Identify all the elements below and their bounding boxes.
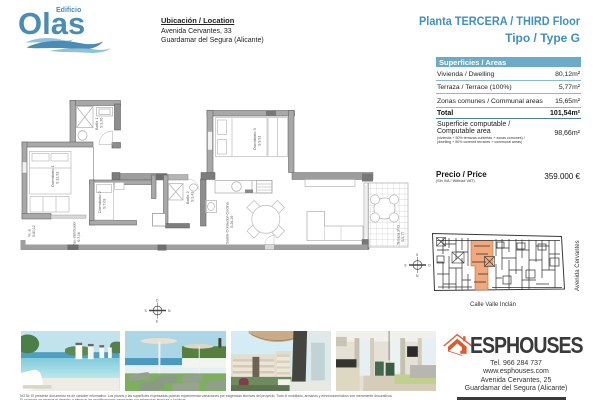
svg-text:Vv. &: Vv. & — [28, 228, 32, 237]
svg-text:S:12,91: S:12,91 — [56, 172, 60, 184]
svg-text:E: E — [156, 320, 159, 324]
svg-text:N: N — [416, 274, 419, 278]
svg-text:S:7,03: S:7,03 — [103, 199, 107, 209]
svg-text:S: S — [145, 309, 148, 313]
svg-text:Dormitorio 3: Dormitorio 3 — [252, 127, 257, 150]
svg-text:Terraza 3ª G: Terraza 3ª G — [397, 225, 401, 245]
svg-text:N: N — [168, 309, 171, 313]
svg-text:Calle Valle Inclán: Calle Valle Inclán — [470, 302, 516, 308]
svg-text:S:3,43: S:3,43 — [191, 192, 195, 202]
svg-text:Dormitorio 1: Dormitorio 1 — [50, 164, 55, 187]
svg-text:E: E — [405, 264, 408, 268]
svg-text:S:80,12: S:80,12 — [32, 225, 36, 237]
svg-text:S:7,06: S:7,06 — [77, 232, 81, 242]
svg-text:Baño 2: Baño 2 — [185, 191, 190, 204]
svg-text:Baño 1: Baño 1 — [94, 117, 99, 130]
svg-text:S:9,91: S:9,91 — [258, 136, 262, 146]
svg-text:O: O — [156, 299, 159, 303]
svg-text:S: S — [416, 253, 419, 257]
svg-text:S:3,26: S:3,26 — [100, 118, 104, 128]
svg-text:Dormitorio 2: Dormitorio 2 — [97, 190, 102, 213]
svg-text:Avenida Cervantes: Avenida Cervantes — [575, 240, 581, 291]
svg-text:S:26,29: S:26,29 — [230, 216, 234, 228]
svg-text:O: O — [428, 264, 431, 268]
svg-text:Pas.-distribuidor: Pas.-distribuidor — [73, 221, 77, 246]
svg-text:S:5,77: S:5,77 — [401, 232, 405, 242]
svg-text:Salón-Comedor-Cocina: Salón-Comedor-Cocina — [225, 201, 230, 244]
